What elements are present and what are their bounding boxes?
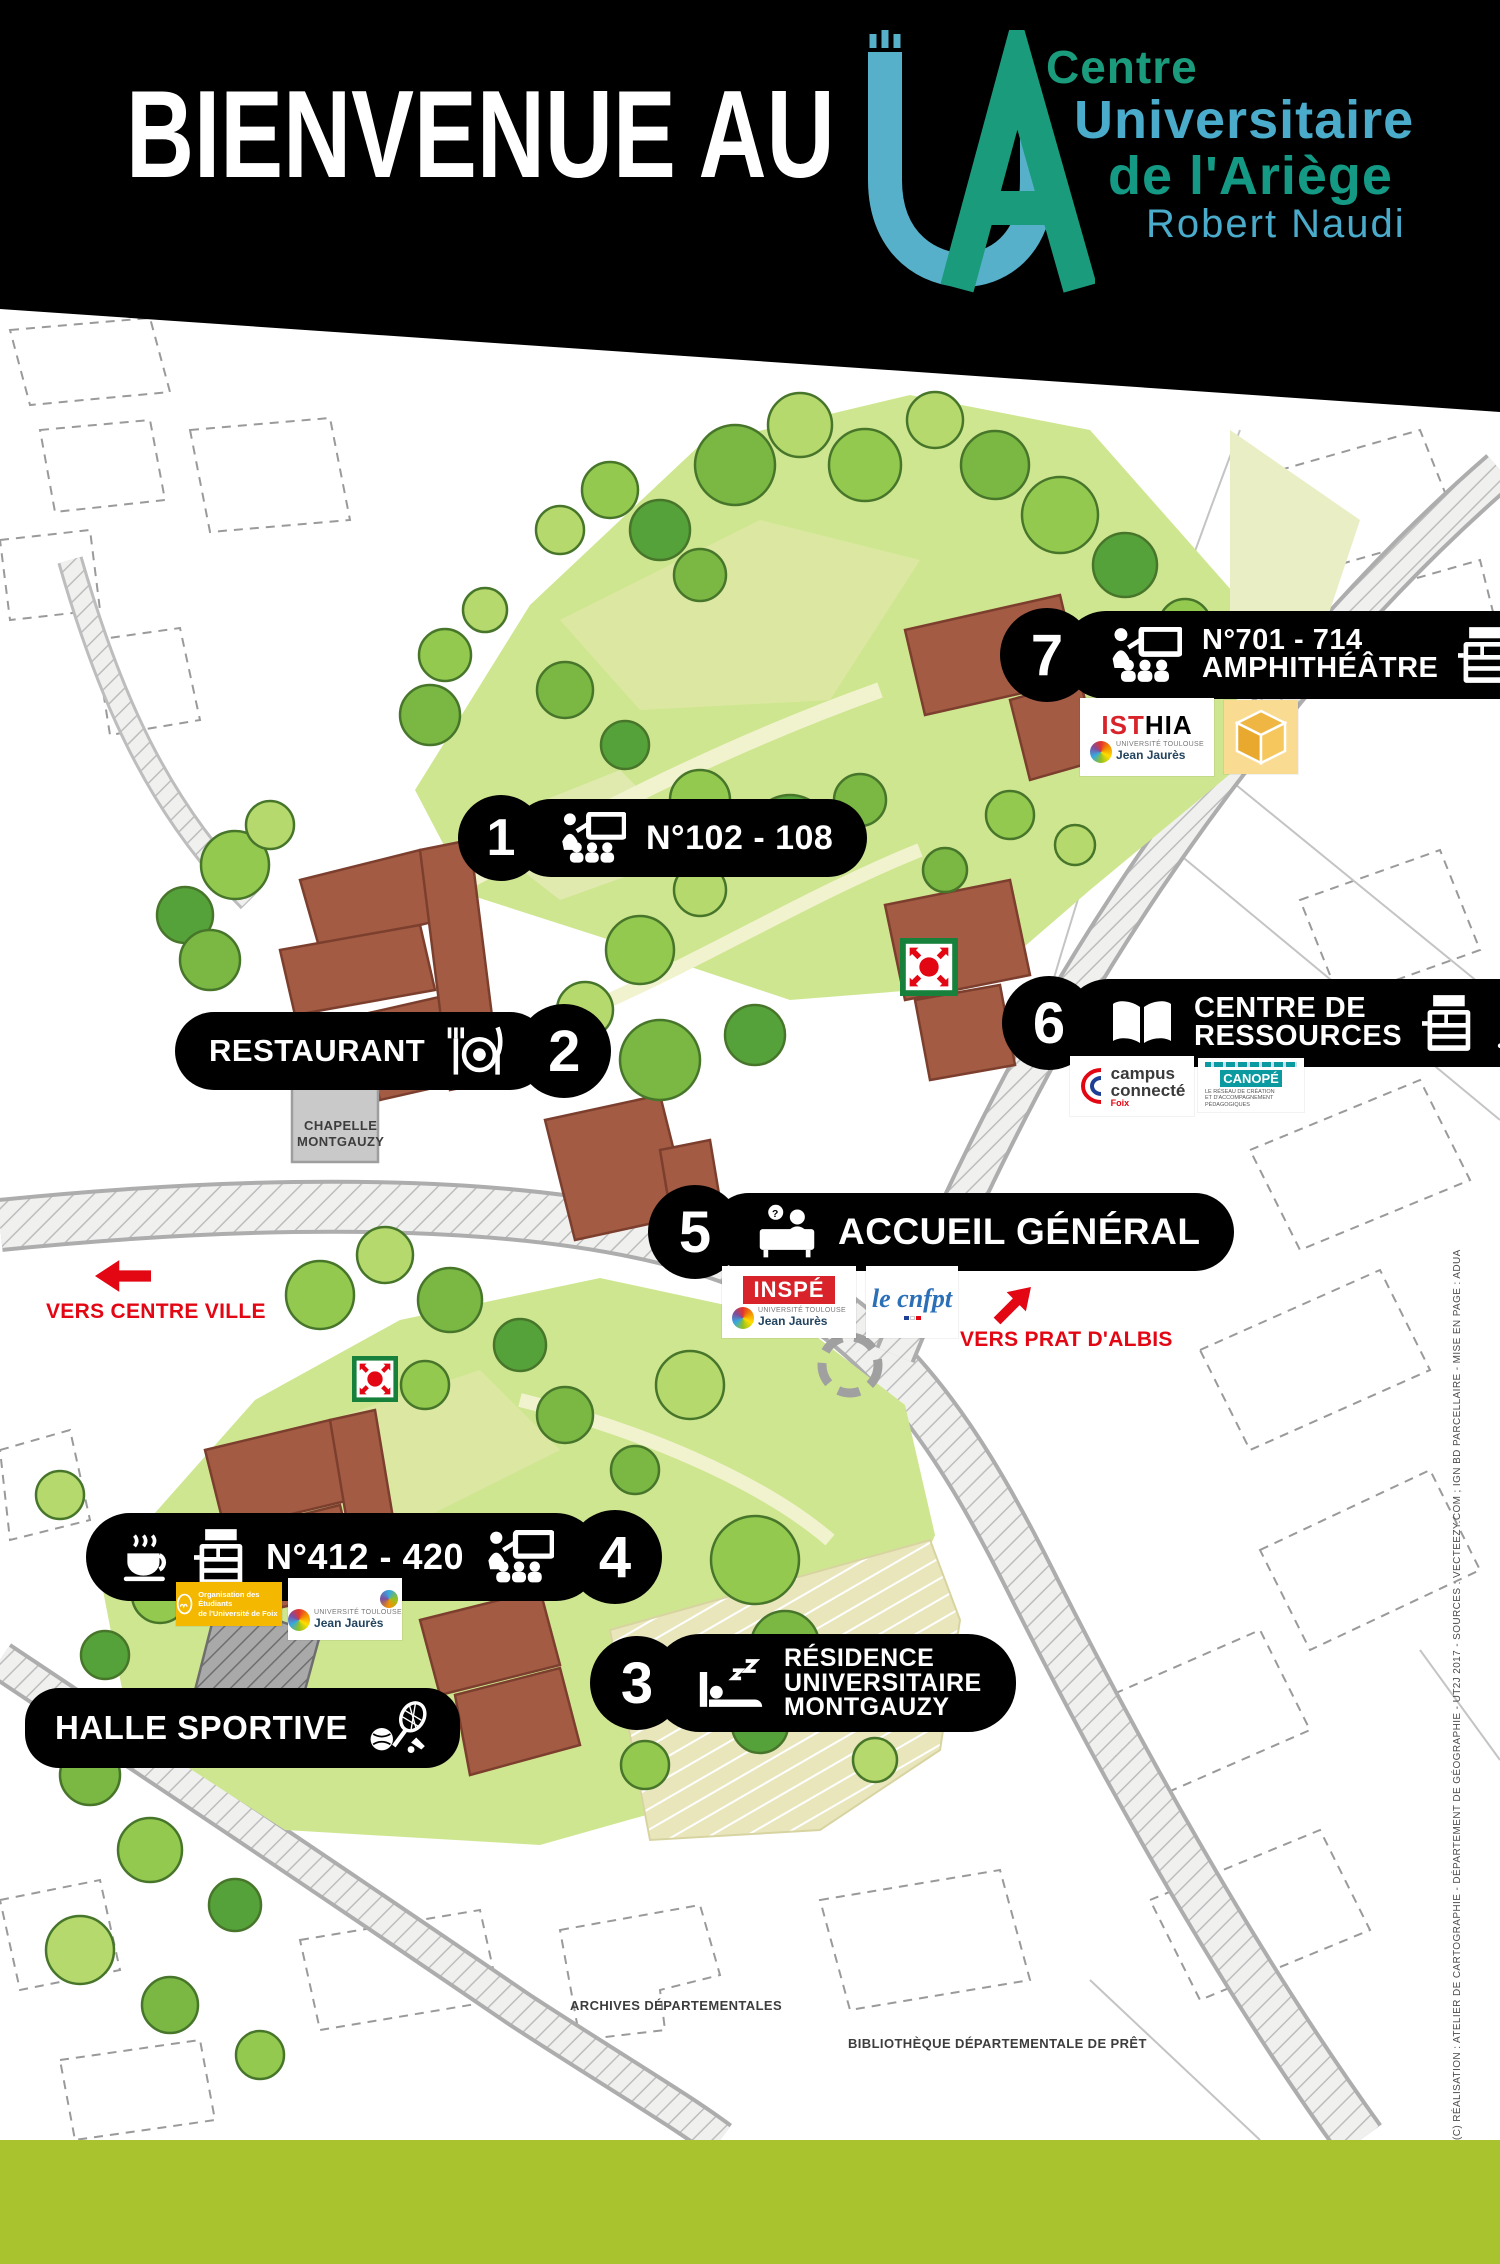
map-badge-3-residence: 3 RÉSIDENCE UNIVERSITAIRE MONTGAUZY [590, 1634, 1016, 1732]
flag-white [910, 1316, 915, 1320]
canope-strip [1205, 1062, 1297, 1067]
badge-number: 3 [590, 1636, 684, 1730]
bed-sleep-icon [698, 1657, 764, 1709]
brand-line-universitaire: Universitaire [1074, 92, 1414, 148]
inspe-sub: UNIVERSITÉ TOULOUSE [758, 1307, 846, 1314]
book-icon [1110, 999, 1174, 1047]
flag-red [916, 1316, 921, 1320]
assembly-point-icon [352, 1356, 398, 1402]
badge-label: ACCUEIL GÉNÉRAL [838, 1211, 1200, 1253]
cube-icon [1235, 709, 1287, 765]
badge-label: RÉSIDENCE [784, 1646, 982, 1671]
foix-line1: Organisation des Étudiants [198, 1590, 282, 1609]
restaurant-icon [445, 1025, 503, 1077]
campus-connecte-word2: connecté [1111, 1082, 1186, 1099]
canope-logo: CANOPÉ LE RÉSEAU DE CRÉATION ET D'ACCOMP… [1198, 1058, 1304, 1112]
badge-label: MONTGAUZY [784, 1695, 982, 1720]
jean-jaures-swirl-icon [732, 1307, 754, 1329]
bibliotheque-label: BIBLIOTHÈQUE DÉPARTEMENTALE DE PRÊT [848, 2036, 1147, 2051]
badge-label: HALLE SPORTIVE [55, 1709, 348, 1747]
badge-label: N°412 - 420 [266, 1536, 464, 1578]
campus-welcome-poster: BIENVENUE AU Centre Universitaire de l'A… [0, 0, 1500, 2264]
direction-centre-ville-label: VERS CENTRE VILLE [46, 1300, 266, 1324]
foix-egg-icon [176, 1591, 193, 1617]
utjj-sub: UNIVERSITÉ TOULOUSE [314, 1609, 402, 1616]
svg-text:?: ? [772, 1209, 778, 1220]
map-credit-text: (C) RÉALISATION : ATELIER DE CARTOGRAPHI… [1452, 1620, 1463, 2140]
inspe-wordmark: INSPÉ [743, 1276, 834, 1304]
campus-connecte-city: Foix [1111, 1099, 1186, 1108]
campus-connecte-arcs-icon [1079, 1066, 1105, 1106]
isthia-jean-jaures: Jean Jaurès [1116, 748, 1204, 762]
jean-jaures-swirl-icon [288, 1609, 310, 1631]
arrow-left-icon [95, 1258, 151, 1294]
badge-label: N°701 - 714 [1202, 627, 1438, 655]
cnfpt-logo: le cnfpt [866, 1266, 958, 1338]
chapelle-label-line2: MONTGAUZY [297, 1134, 384, 1150]
arrow-up-right-icon [990, 1280, 1038, 1328]
badge-label: AMPHITHÉÂTRE [1202, 655, 1438, 683]
chapelle-label: CHAPELLE MONTGAUZY [297, 1118, 384, 1151]
classroom-icon [558, 812, 626, 864]
map-badge-2-restaurant: 2 RESTAURANT [175, 1004, 611, 1098]
flag-blue [904, 1316, 909, 1320]
campus-connecte-word1: campus [1111, 1065, 1186, 1082]
jean-jaures-swirl-icon [1090, 741, 1112, 763]
map-badge-1-rooms: 1 N°102 - 108 [458, 795, 867, 881]
brand-line-robert-naudi: Robert Naudi [1146, 204, 1414, 246]
sports-icon [368, 1700, 430, 1756]
classroom-icon [1108, 627, 1182, 683]
printer-icon [1422, 993, 1474, 1053]
coffee-icon [120, 1532, 174, 1582]
direction-prat-albis-label: VERS PRAT D'ALBIS [960, 1328, 1173, 1352]
utjj-jean-jaures: Jean Jaurès [314, 1616, 402, 1630]
cnfpt-wordmark: le cnfpt [872, 1284, 952, 1314]
welcome-title: BIENVENUE AU [126, 64, 835, 206]
canope-wordmark: CANOPÉ [1220, 1070, 1282, 1087]
canope-sub2: ET D'ACCOMPAGNEMENT PÉDAGOGIQUES [1205, 1095, 1297, 1108]
campus-connecte-logo: campus connecté Foix [1070, 1056, 1194, 1116]
badge-label: CENTRE DE [1194, 995, 1402, 1023]
badge-number: 1 [458, 795, 544, 881]
foix-students-logo: Organisation des Étudiants de l'Universi… [176, 1582, 282, 1626]
ut-jean-jaures-geo-logo: UNIVERSITÉ TOULOUSE Jean Jaurès [288, 1578, 402, 1640]
isthia-logo: ISTHIA UNIVERSITÉ TOULOUSE Jean Jaurès [1080, 698, 1214, 776]
brand-line-ariege: de l'Ariège [1108, 148, 1414, 204]
badge-label: UNIVERSITAIRE [784, 1671, 982, 1696]
canope-sub1: LE RÉSEAU DE CRÉATION [1205, 1089, 1297, 1096]
footer-green-bar [0, 2140, 1500, 2264]
classroom-icon [484, 1530, 554, 1584]
badge-label: RESTAURANT [209, 1033, 425, 1069]
brand-line-centre: Centre [1046, 44, 1414, 92]
map-badge-7-amphitheatre: 7 N°701 - 714 AMPHITHÉÂTRE [1000, 608, 1500, 702]
coffee-icon [1494, 997, 1500, 1049]
badge-number: 7 [1000, 608, 1094, 702]
printer-icon [1458, 625, 1500, 685]
map-badge-halle-sportive: HALLE SPORTIVE [25, 1688, 460, 1768]
isthia-wordmark: IST [1101, 710, 1144, 740]
brand-wordmark: Centre Universitaire de l'Ariège Robert … [1046, 44, 1414, 246]
printer-icon [194, 1527, 246, 1587]
chapelle-label-line1: CHAPELLE [297, 1118, 384, 1134]
badge-label: N°102 - 108 [646, 819, 833, 858]
map-badge-5-accueil-general: 5 ? ACCUEIL GÉNÉRAL [648, 1185, 1234, 1279]
archives-label: ARCHIVES DÉPARTEMENTALES [570, 1998, 782, 2013]
cube-logo [1224, 700, 1298, 774]
badge-number: 5 [648, 1185, 742, 1279]
geo-department-icon [380, 1590, 398, 1608]
badge-number: 4 [568, 1510, 662, 1604]
inspe-jean-jaures: Jean Jaurès [758, 1314, 846, 1328]
inspe-logo: INSPÉ UNIVERSITÉ TOULOUSE Jean Jaurès [722, 1266, 856, 1338]
foix-line2: de l'Université de Foix [198, 1609, 282, 1618]
assembly-point-icon [900, 938, 958, 996]
badge-label: RESSOURCES [1194, 1023, 1402, 1051]
badge-number: 2 [517, 1004, 611, 1098]
reception-desk-icon: ? [756, 1204, 818, 1260]
isthia-sub: UNIVERSITÉ TOULOUSE [1116, 741, 1204, 748]
